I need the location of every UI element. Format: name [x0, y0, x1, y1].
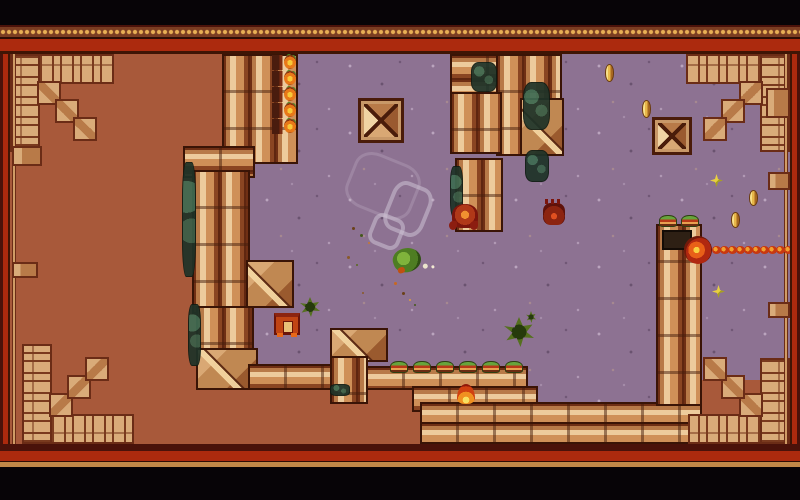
- debris: [352, 227, 355, 230]
- pipe-cap: [505, 361, 523, 373]
- letterbox-bottom: [0, 467, 800, 500]
- debris: [394, 282, 397, 285]
- wall-topright-c: [450, 92, 502, 154]
- pyramid-crate-1: [358, 98, 404, 143]
- debris: [409, 299, 411, 301]
- carpet-ornament: [768, 172, 790, 190]
- carpet-arm-v: [22, 344, 52, 444]
- wall-torch: [272, 87, 296, 102]
- carpet-step: [73, 117, 97, 141]
- carpet-step: [703, 357, 727, 381]
- carpet-ornament: [768, 302, 790, 318]
- debris: [347, 256, 350, 259]
- carpet-corner-bottomleft: [22, 344, 134, 444]
- moss-patch: [188, 304, 201, 366]
- wall-torch: [272, 71, 296, 86]
- debris: [356, 264, 358, 266]
- game-viewport[interactable]: [10, 54, 790, 444]
- carpet-step: [703, 117, 727, 141]
- wall-bottom-row-2: [420, 422, 702, 444]
- wall-stub-right: [246, 260, 294, 308]
- chain-link: [784, 246, 790, 254]
- frame-top-gold-dots: [0, 27, 800, 37]
- carpet-ornament: [766, 88, 790, 118]
- crab-enemy-2: [543, 203, 565, 225]
- pipe-cap: [482, 361, 500, 373]
- debris: [362, 292, 364, 294]
- tower-cap: [681, 215, 699, 227]
- gold-coin-4: [731, 212, 740, 228]
- game-screen: [0, 0, 800, 500]
- carpet-ornament: [12, 262, 38, 278]
- moss-patch: [471, 62, 497, 92]
- debris: [414, 304, 416, 306]
- moss-patch: [330, 384, 350, 396]
- gold-coin-3: [749, 190, 758, 206]
- carpet-corner-bottomright: [688, 358, 790, 444]
- gold-coin-1: [605, 64, 614, 82]
- moss-patch: [525, 150, 549, 182]
- crab-enemy-1: [452, 204, 478, 228]
- pipe-cap: [413, 361, 431, 373]
- wall-left-column: [192, 170, 250, 314]
- pipe-cap: [390, 361, 408, 373]
- frame-top-red-band: [0, 39, 800, 51]
- chain-gate-turret: [684, 236, 712, 264]
- carpet-ornament: [12, 146, 42, 166]
- carpet-trim-left: [13, 54, 15, 444]
- wall-torch: [272, 55, 296, 70]
- pipe-cap: [459, 361, 477, 373]
- moss-patch: [523, 82, 550, 130]
- debris: [360, 234, 363, 237]
- frame-bottom-red-band: [0, 451, 800, 461]
- pipe-cap: [436, 361, 454, 373]
- carpet-corner-topleft: [10, 54, 114, 152]
- wall-torch: [272, 119, 296, 134]
- flame-enemy: [457, 384, 475, 404]
- wall-hpipe-left: [248, 364, 336, 390]
- carpet-step: [85, 357, 109, 381]
- wall-bracket-spine: [330, 356, 368, 404]
- moss-patch: [182, 162, 196, 277]
- tower-cap: [659, 215, 677, 227]
- debris: [402, 292, 405, 295]
- debris: [368, 242, 370, 244]
- frame-bottom-maroon: [0, 444, 800, 451]
- spawner-hut: [274, 313, 300, 335]
- letterbox-top: [0, 0, 800, 25]
- wall-torch: [272, 103, 296, 118]
- gold-coin-2: [642, 100, 651, 118]
